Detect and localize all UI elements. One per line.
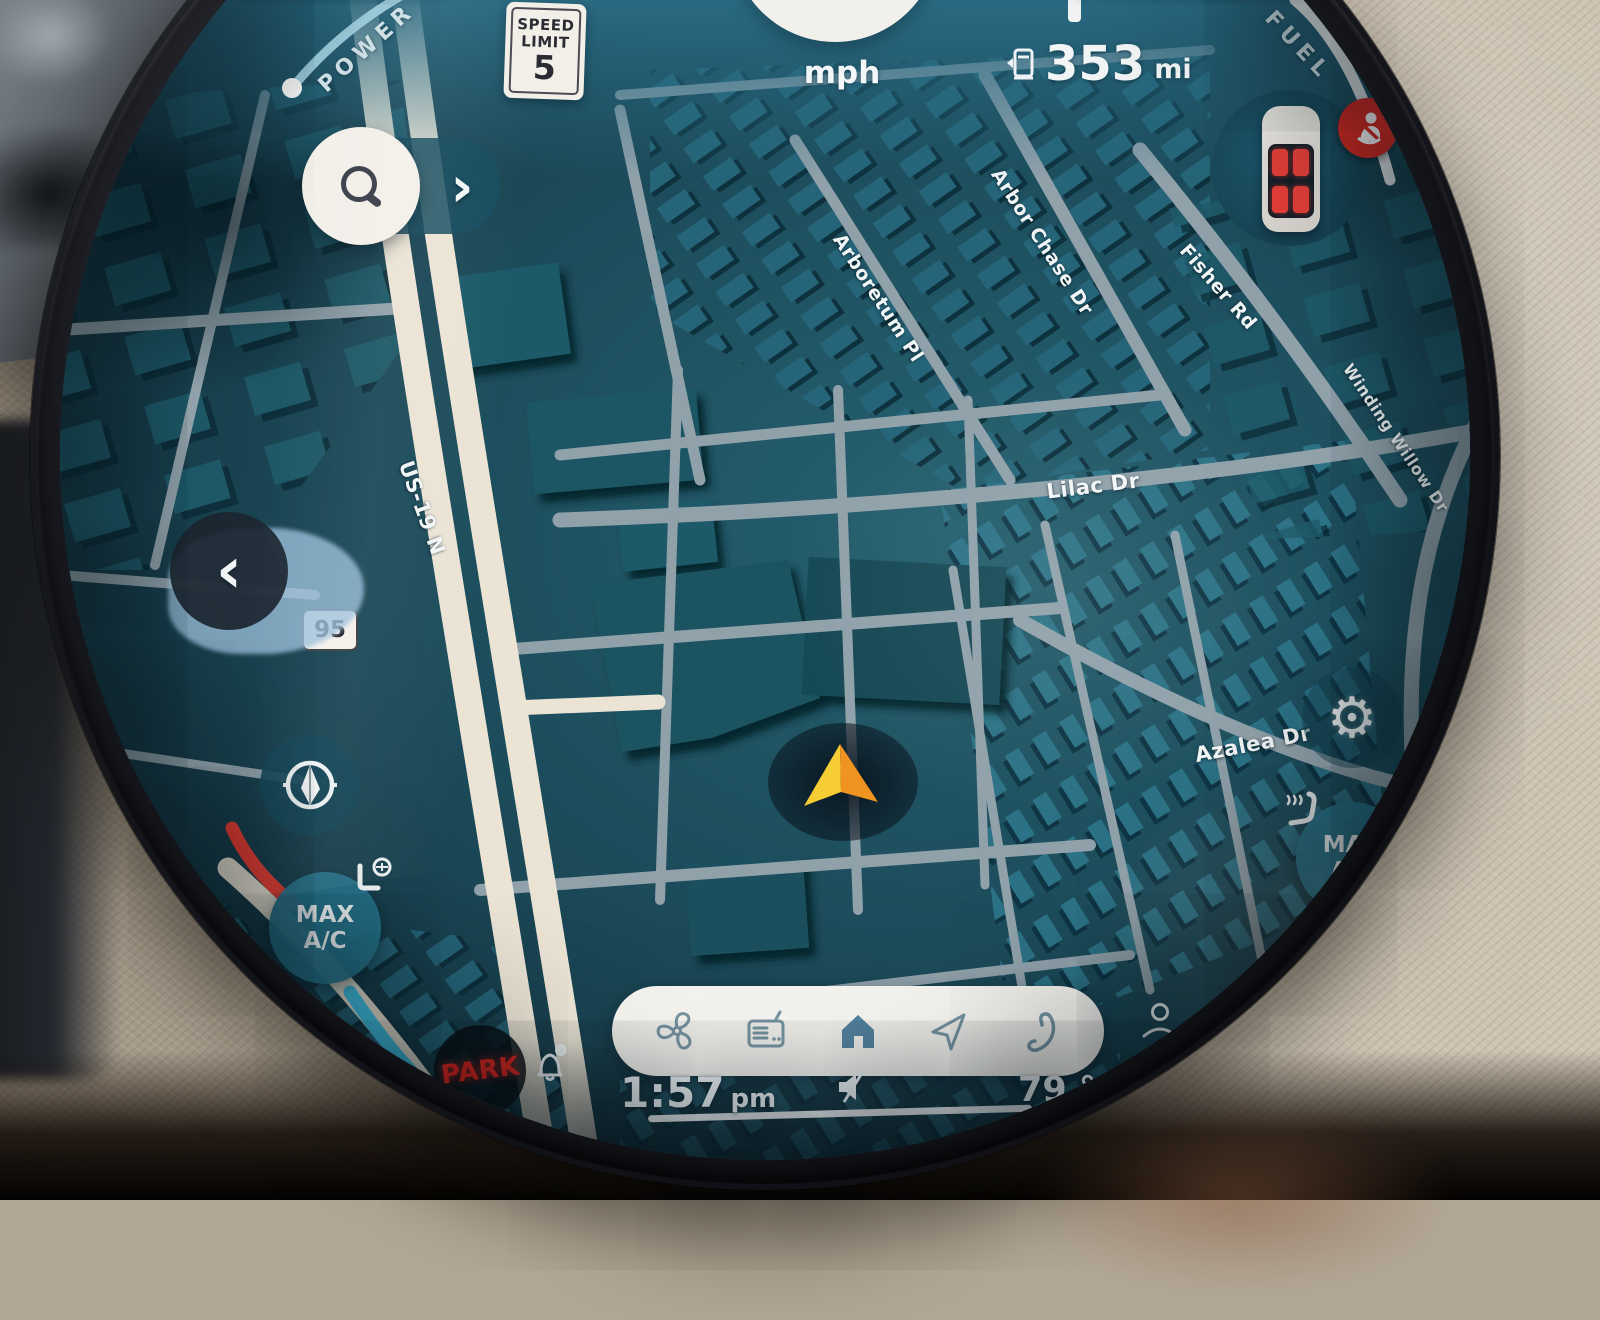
seat-front-left-indicator — [1272, 149, 1288, 176]
fuel-gauge-tick — [1068, 0, 1081, 22]
seat-front-right-indicator — [1293, 149, 1309, 176]
compass-icon — [280, 755, 340, 815]
range-value: 353 — [1045, 36, 1145, 92]
speed-limit-sign: SPEED LIMIT 5 — [503, 2, 586, 101]
media-radio-button[interactable] — [741, 1005, 793, 1057]
heated-seat-icon — [1278, 788, 1322, 832]
compass-button[interactable] — [260, 735, 360, 835]
search-button[interactable] — [302, 127, 420, 245]
clock-meridiem: pm — [730, 1084, 776, 1114]
vehicle-position-arrow — [798, 740, 884, 814]
range-unit: mi — [1154, 54, 1191, 85]
phone-button[interactable] — [1013, 1005, 1065, 1057]
back-button[interactable]: ‹ — [170, 512, 288, 630]
max-ac-left-line2: A/C — [303, 928, 346, 954]
speed-unit: mph — [782, 55, 902, 91]
search-expand-chevron[interactable]: › — [432, 158, 492, 218]
fuel-pump-icon — [1006, 46, 1036, 82]
seat-rear-right-indicator — [1293, 186, 1309, 213]
clock-time: 1:57 — [620, 1068, 724, 1117]
seat-rear-left-indicator — [1272, 186, 1288, 213]
home-icon — [835, 1008, 881, 1054]
heated-steering-wheel-icon — [352, 854, 396, 898]
max-ac-right-line1: MAX — [1323, 832, 1381, 858]
fuel-range-readout: 353 mi — [1006, 36, 1192, 92]
vehicle-topview — [1262, 106, 1320, 232]
seatbelt-warning-badge[interactable] — [1338, 98, 1398, 158]
instrument-display-screen: Arboretum Pl Arbor Chase Dr Fisher Rd Wi… — [60, 0, 1470, 1160]
outside-temperature: 79 °F — [1018, 1070, 1120, 1110]
search-icon — [339, 164, 383, 208]
speed-value: 0 — [783, 0, 887, 25]
gear-icon: ⚙ — [1327, 686, 1377, 751]
settings-button[interactable]: ⚙ — [1302, 668, 1402, 768]
speed-limit-value: 5 — [532, 51, 556, 86]
profile-button[interactable] — [1138, 998, 1182, 1042]
app-dock — [612, 986, 1104, 1076]
climate-fan-button[interactable] — [651, 1005, 703, 1057]
gear-indicator-text: PARK — [439, 1051, 521, 1090]
clock-readout: 1:57 pm — [620, 1068, 776, 1117]
mute-icon[interactable] — [832, 1068, 876, 1108]
instrument-display-bezel: Arboretum Pl Arbor Chase Dr Fisher Rd Wi… — [30, 0, 1500, 1190]
seatbelt-icon — [1347, 107, 1389, 149]
radio-icon — [744, 1008, 790, 1054]
fan-icon — [654, 1008, 700, 1054]
vehicle-cabin — [1268, 144, 1314, 218]
navigation-arrow-icon — [926, 1008, 972, 1054]
phone-icon — [1016, 1008, 1062, 1054]
max-ac-left-line1: MAX — [296, 902, 354, 928]
max-ac-right-line2: A/C — [1330, 858, 1373, 884]
notifications-bell-button[interactable] — [528, 1038, 574, 1084]
navigation-button[interactable] — [923, 1005, 975, 1057]
gear-indicator: PARK — [434, 1025, 526, 1117]
home-button[interactable] — [832, 1005, 884, 1057]
